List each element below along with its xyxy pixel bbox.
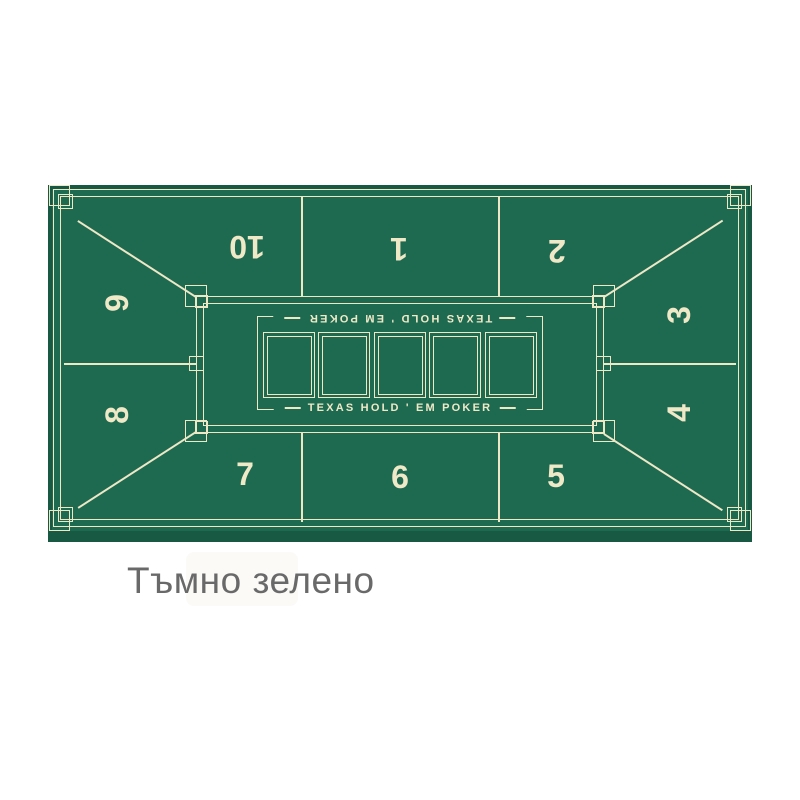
card-slot-inner bbox=[378, 336, 423, 395]
frame-corner-ornament bbox=[592, 295, 605, 308]
seat-divider bbox=[498, 197, 500, 296]
brand-text-top-label: TEXAS HOLD ' EM POKER bbox=[308, 312, 493, 324]
corner-ornament bbox=[58, 507, 73, 522]
frame-corner-ornament bbox=[592, 421, 605, 434]
seat-divider bbox=[498, 433, 500, 522]
seat-divider bbox=[64, 363, 196, 365]
dash-line bbox=[499, 317, 515, 319]
corner-ornament bbox=[727, 194, 742, 209]
dash-line bbox=[285, 407, 301, 409]
seat-number-6: 6 bbox=[391, 461, 409, 493]
seat-number-4: 4 bbox=[663, 404, 695, 422]
card-slot-inner bbox=[433, 336, 478, 395]
brand-text-bottom: TEXAS HOLD ' EM POKER bbox=[274, 401, 527, 415]
card-slot bbox=[429, 332, 481, 398]
card-slot-inner bbox=[322, 336, 367, 395]
seat-divider bbox=[301, 433, 303, 522]
card-slot bbox=[485, 332, 537, 398]
frame-side-ornament bbox=[189, 356, 204, 371]
corner-ornament bbox=[58, 194, 73, 209]
card-slot bbox=[374, 332, 426, 398]
frame-corner-ornament bbox=[195, 421, 208, 434]
card-slot-inner bbox=[267, 336, 312, 395]
seat-number-5: 5 bbox=[547, 460, 565, 492]
card-slot bbox=[263, 332, 315, 398]
frame-corner-ornament bbox=[195, 295, 208, 308]
seat-number-8: 8 bbox=[101, 406, 133, 424]
seat-divider bbox=[604, 363, 736, 365]
seat-number-2: 2 bbox=[548, 235, 566, 267]
seat-divider bbox=[301, 197, 303, 296]
seat-number-7: 7 bbox=[236, 458, 254, 490]
brand-text-bottom-label: TEXAS HOLD ' EM POKER bbox=[308, 402, 493, 414]
card-slot-inner bbox=[489, 336, 534, 395]
color-caption: Тъмно зелено bbox=[127, 562, 375, 599]
brand-text-top: TEXAS HOLD ' EM POKER bbox=[274, 311, 527, 325]
corner-ornament bbox=[727, 507, 742, 522]
poker-mat: TEXAS HOLD ' EM POKER TEXAS HOLD ' EM PO… bbox=[48, 185, 752, 542]
card-slot bbox=[318, 332, 370, 398]
seat-number-3: 3 bbox=[663, 306, 695, 324]
seat-number-9: 9 bbox=[101, 294, 133, 312]
seat-number-1: 1 bbox=[390, 233, 408, 265]
dash-line bbox=[499, 407, 515, 409]
dash-line bbox=[285, 317, 301, 319]
frame-side-ornament bbox=[596, 356, 611, 371]
seat-number-10: 10 bbox=[229, 231, 265, 263]
product-image: TEXAS HOLD ' EM POKER TEXAS HOLD ' EM PO… bbox=[0, 0, 800, 800]
